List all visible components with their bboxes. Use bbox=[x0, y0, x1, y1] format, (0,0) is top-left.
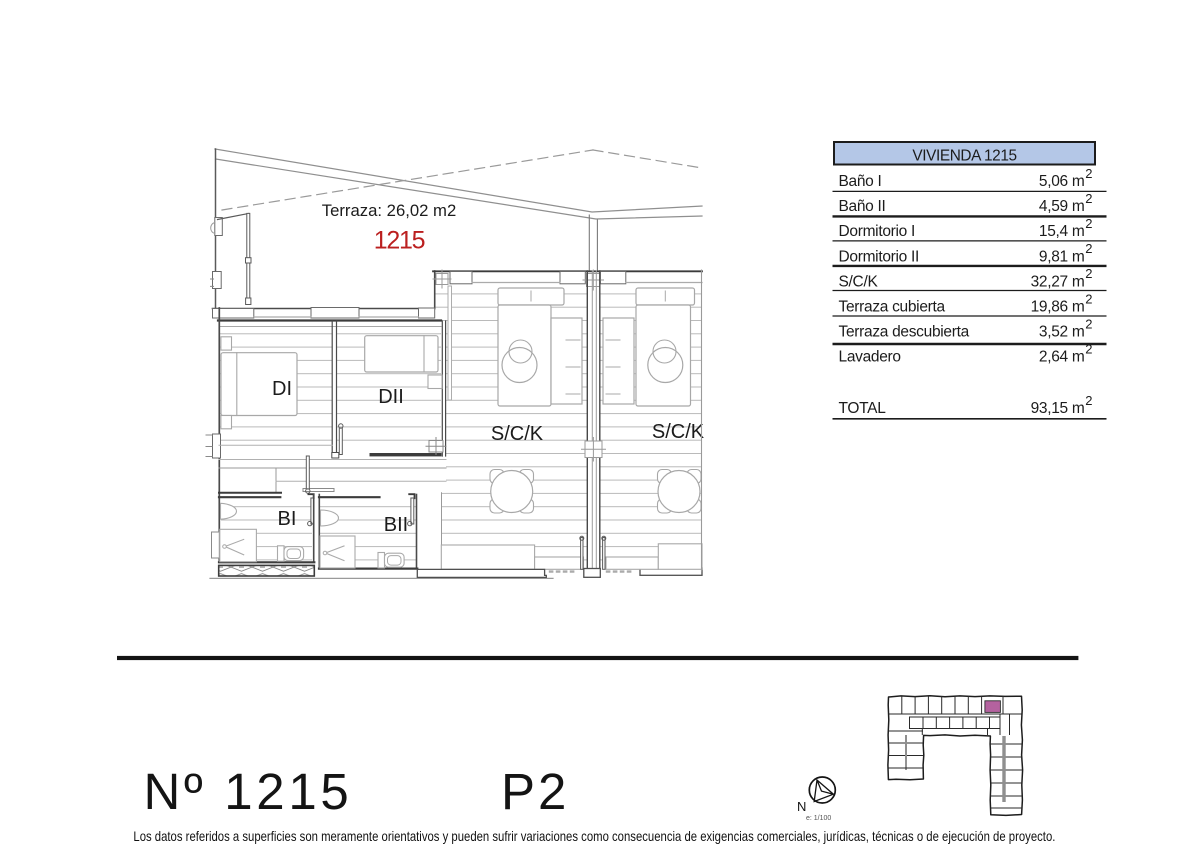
svg-text:BII: BII bbox=[384, 514, 408, 536]
svg-text:e: 1/100: e: 1/100 bbox=[806, 815, 831, 822]
svg-text:32,27 m: 32,27 m bbox=[1031, 273, 1085, 290]
svg-text:93,15 m: 93,15 m bbox=[1031, 400, 1085, 417]
svg-text:Nº 1215: Nº 1215 bbox=[144, 763, 353, 820]
svg-text:Lavadero: Lavadero bbox=[839, 349, 901, 366]
svg-text:3,52 m: 3,52 m bbox=[1039, 324, 1085, 341]
svg-text:Terraza cubierta: Terraza cubierta bbox=[839, 299, 946, 316]
svg-text:2: 2 bbox=[1085, 266, 1092, 281]
svg-text:2: 2 bbox=[1085, 241, 1092, 256]
svg-text:2: 2 bbox=[1085, 393, 1092, 408]
svg-text:2: 2 bbox=[1085, 191, 1092, 206]
svg-text:4,59 m: 4,59 m bbox=[1039, 198, 1085, 215]
svg-text:S/C/K: S/C/K bbox=[839, 273, 879, 290]
svg-text:2,64 m: 2,64 m bbox=[1039, 349, 1085, 366]
svg-text:9,81 m: 9,81 m bbox=[1039, 248, 1085, 265]
svg-text:DII: DII bbox=[378, 386, 404, 408]
svg-text:2: 2 bbox=[1085, 316, 1092, 331]
svg-text:P2: P2 bbox=[501, 763, 569, 820]
svg-text:2: 2 bbox=[1085, 216, 1092, 231]
svg-text:BI: BI bbox=[278, 508, 297, 530]
svg-text:Los datos referidos a superfic: Los datos referidos a superficies son me… bbox=[133, 828, 1055, 844]
svg-text:N: N bbox=[797, 799, 806, 814]
svg-text:Terraza descubierta: Terraza descubierta bbox=[839, 324, 970, 341]
svg-text:Dormitorio I: Dormitorio I bbox=[839, 223, 916, 240]
svg-text:1215: 1215 bbox=[374, 227, 425, 255]
svg-text:15,4 m: 15,4 m bbox=[1039, 223, 1085, 240]
svg-text:Terraza: 26,02 m2: Terraza: 26,02 m2 bbox=[322, 201, 457, 220]
svg-text:2: 2 bbox=[1085, 291, 1092, 306]
svg-text:Baño II: Baño II bbox=[839, 198, 886, 215]
svg-text:19,86 m: 19,86 m bbox=[1031, 299, 1085, 316]
svg-text:S/C/K: S/C/K bbox=[491, 423, 544, 445]
svg-text:5,06 m: 5,06 m bbox=[1039, 173, 1085, 190]
svg-text:Dormitorio II: Dormitorio II bbox=[839, 248, 920, 265]
svg-text:S/C/K: S/C/K bbox=[652, 421, 705, 443]
svg-text:TOTAL: TOTAL bbox=[839, 400, 887, 417]
svg-text:2: 2 bbox=[1085, 166, 1092, 181]
svg-text:VIVIENDA 1215: VIVIENDA 1215 bbox=[912, 147, 1016, 164]
svg-text:Baño I: Baño I bbox=[839, 173, 882, 190]
svg-text:DI: DI bbox=[272, 378, 292, 400]
svg-text:2: 2 bbox=[1085, 342, 1092, 357]
